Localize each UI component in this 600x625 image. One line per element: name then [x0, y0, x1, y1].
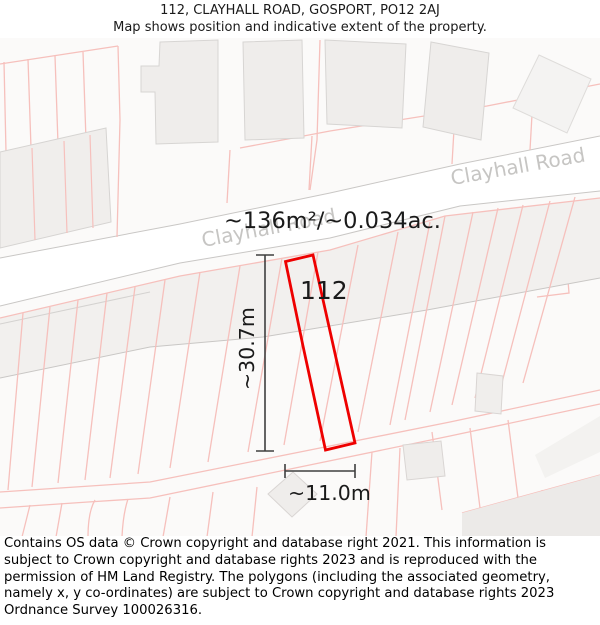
building [325, 40, 406, 128]
map-header: 112, CLAYHALL ROAD, GOSPORT, PO12 2AJ Ma… [0, 2, 600, 36]
map-canvas: Clayhall Road Clayhall Road ~136m²/~0.03… [0, 38, 600, 536]
area-label: ~136m²/~0.034ac. [224, 208, 441, 234]
building [475, 373, 503, 414]
building [423, 42, 489, 140]
building [403, 441, 445, 480]
property-number-label: 112 [300, 276, 348, 305]
copyright-notice: Contains OS data © Crown copyright and d… [4, 536, 598, 620]
page-title: 112, CLAYHALL ROAD, GOSPORT, PO12 2AJ [0, 2, 600, 19]
height-dimension-label: ~30.7m [235, 307, 259, 390]
width-dimension-label: ~11.0m [288, 481, 371, 505]
building [243, 40, 304, 140]
property-map: Clayhall Road Clayhall Road ~136m²/~0.03… [0, 38, 600, 536]
page-subtitle: Map shows position and indicative extent… [0, 19, 600, 36]
